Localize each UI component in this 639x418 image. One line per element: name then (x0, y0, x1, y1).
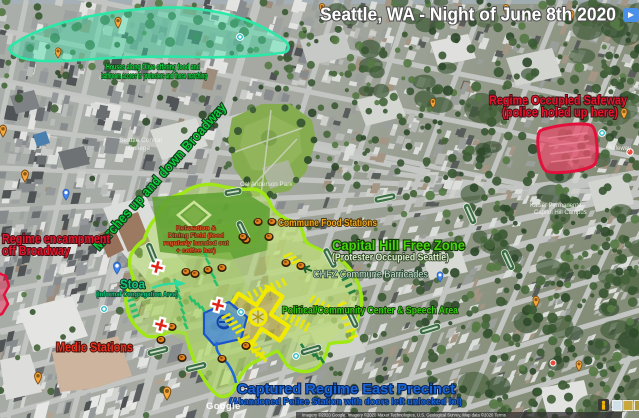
svg-text:Seattle Central: Seattle Central (119, 137, 163, 144)
svg-text:Relaxation &: Relaxation & (176, 225, 216, 232)
svg-text:Dining Field (food: Dining Field (food (168, 233, 224, 240)
svg-text:bathroom access to protesters: bathroom access to protesters and those … (101, 72, 207, 81)
svg-text:Stoa: Stoa (120, 278, 146, 292)
svg-text:(Abandoned Police Station with: (Abandoned Police Station with doors lef… (229, 397, 462, 407)
svg-text:Captured Regime East Precinct: Captured Regime East Precinct (237, 381, 455, 397)
svg-text:(Informal Congregation Area): (Informal Congregation Area) (96, 292, 178, 299)
svg-text:Cal Anderson Park: Cal Anderson Park (240, 181, 293, 188)
svg-text:Houses along Olive offering fo: Houses along Olive offering food and (106, 63, 200, 72)
svg-text:off Broadway: off Broadway (2, 244, 70, 258)
svg-text:CHFZ Commune Barricades: CHFZ Commune Barricades (313, 270, 428, 281)
svg-text:(police holed up here): (police holed up here) (502, 106, 618, 120)
svg-text:(Protester Occupied Seattle): (Protester Occupied Seattle) (332, 253, 449, 264)
svg-text:College: College (128, 145, 150, 152)
svg-text:Google: Google (206, 401, 241, 412)
svg-text:Kaiser Permanente: Kaiser Permanente (530, 203, 582, 209)
svg-text:Safeway: Safeway (608, 146, 631, 152)
svg-text:regularly handed out: regularly handed out (163, 240, 229, 247)
svg-text:Political/Community Center & S: Political/Community Center & Speech Area (282, 306, 458, 317)
svg-text:Commune Food Stations: Commune Food Stations (278, 218, 377, 229)
svg-text:Capitol Hill Campus: Capitol Hill Campus (534, 210, 587, 216)
svg-text:Imagery ©2020 Google, Imagery: Imagery ©2020 Google, Imagery ©2020 Maxa… (302, 413, 506, 418)
svg-text:Capital Hill Free Zone: Capital Hill Free Zone (332, 237, 465, 253)
svg-text:Seattle, WA - Night of June 8t: Seattle, WA - Night of June 8th 2020 (320, 5, 616, 25)
svg-text:+ coffee bar): + coffee bar) (176, 248, 215, 255)
svg-text:Medic Stations: Medic Stations (56, 341, 133, 355)
